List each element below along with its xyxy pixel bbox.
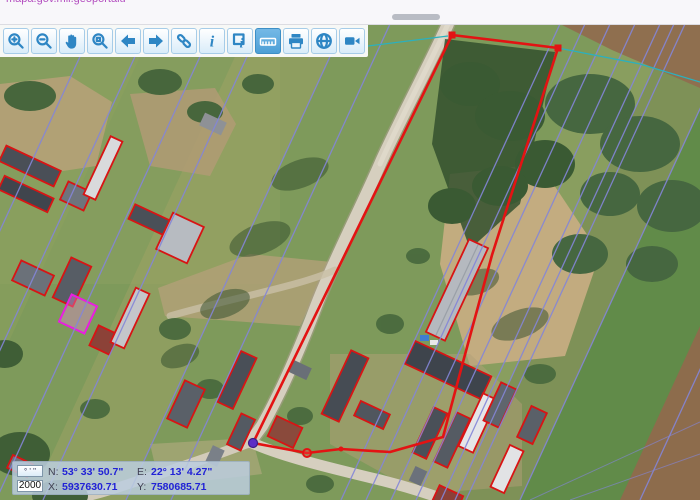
aerial-map[interactable] (0, 24, 700, 500)
vehicle-blue (420, 335, 429, 341)
globe-icon (314, 31, 334, 51)
zoom-out-button[interactable] (31, 28, 57, 54)
parcel-vertex-circle (303, 449, 311, 457)
browser-link-text[interactable]: mapa.gov.mil.geoportalu (6, 0, 126, 5)
north-value: 53° 33' 50.7" (62, 466, 123, 478)
x-value: 5937630.71 (62, 481, 117, 493)
parcel-vertex-square (449, 32, 456, 39)
info-icon: i (202, 31, 222, 51)
zoom-window-icon (90, 31, 110, 51)
globe-button[interactable] (311, 28, 337, 54)
zoom-out-icon (34, 31, 54, 51)
pan-hand-icon (62, 31, 82, 51)
browser-top-strip: mapa.gov.mil.geoportalu (0, 0, 700, 25)
browser-chrome-fragment (392, 14, 440, 20)
measure-ruler-icon (258, 31, 278, 51)
previous-view-button[interactable] (115, 28, 141, 54)
zoom-window-button[interactable] (87, 28, 113, 54)
zoom-in-icon (6, 31, 26, 51)
parcel-vertex-square (555, 45, 562, 52)
y-value: 7580685.71 (151, 481, 206, 493)
camera-button[interactable] (339, 28, 365, 54)
identify-icon: i (230, 31, 250, 51)
parcel-vertex-node (339, 447, 344, 452)
geoportal-app: mapa.gov.mil.geoportalu (0, 0, 700, 500)
east-label: E: (137, 466, 147, 478)
zoom-in-button[interactable] (3, 28, 29, 54)
north-label: N: (48, 466, 59, 478)
svg-text:i: i (240, 36, 244, 51)
y-label: Y: (137, 481, 146, 493)
arrow-left-icon (118, 31, 138, 51)
arrow-right-icon (146, 31, 166, 51)
pan-button[interactable] (59, 28, 85, 54)
dms-format-toggle[interactable]: ° ' " (17, 465, 43, 477)
map-viewport[interactable] (0, 24, 700, 500)
x-label: X: (48, 481, 58, 493)
scale-input[interactable] (17, 480, 43, 492)
map-toolbar: i i (0, 24, 368, 57)
video-camera-icon (342, 31, 362, 51)
link-button[interactable] (171, 28, 197, 54)
vehicle-white (430, 340, 438, 345)
print-icon (286, 31, 306, 51)
identify-button[interactable]: i (227, 28, 253, 54)
coordinate-panel: ° ' " N: 53° 33' 50.7" E: 22° 13' 4.27" … (12, 461, 250, 495)
east-value: 22° 13' 4.27" (151, 466, 212, 478)
measure-point-marker[interactable] (249, 439, 258, 448)
next-view-button[interactable] (143, 28, 169, 54)
info-button[interactable]: i (199, 28, 225, 54)
measure-button[interactable] (255, 28, 281, 54)
link-icon (174, 31, 194, 51)
svg-text:i: i (210, 33, 215, 50)
print-button[interactable] (283, 28, 309, 54)
